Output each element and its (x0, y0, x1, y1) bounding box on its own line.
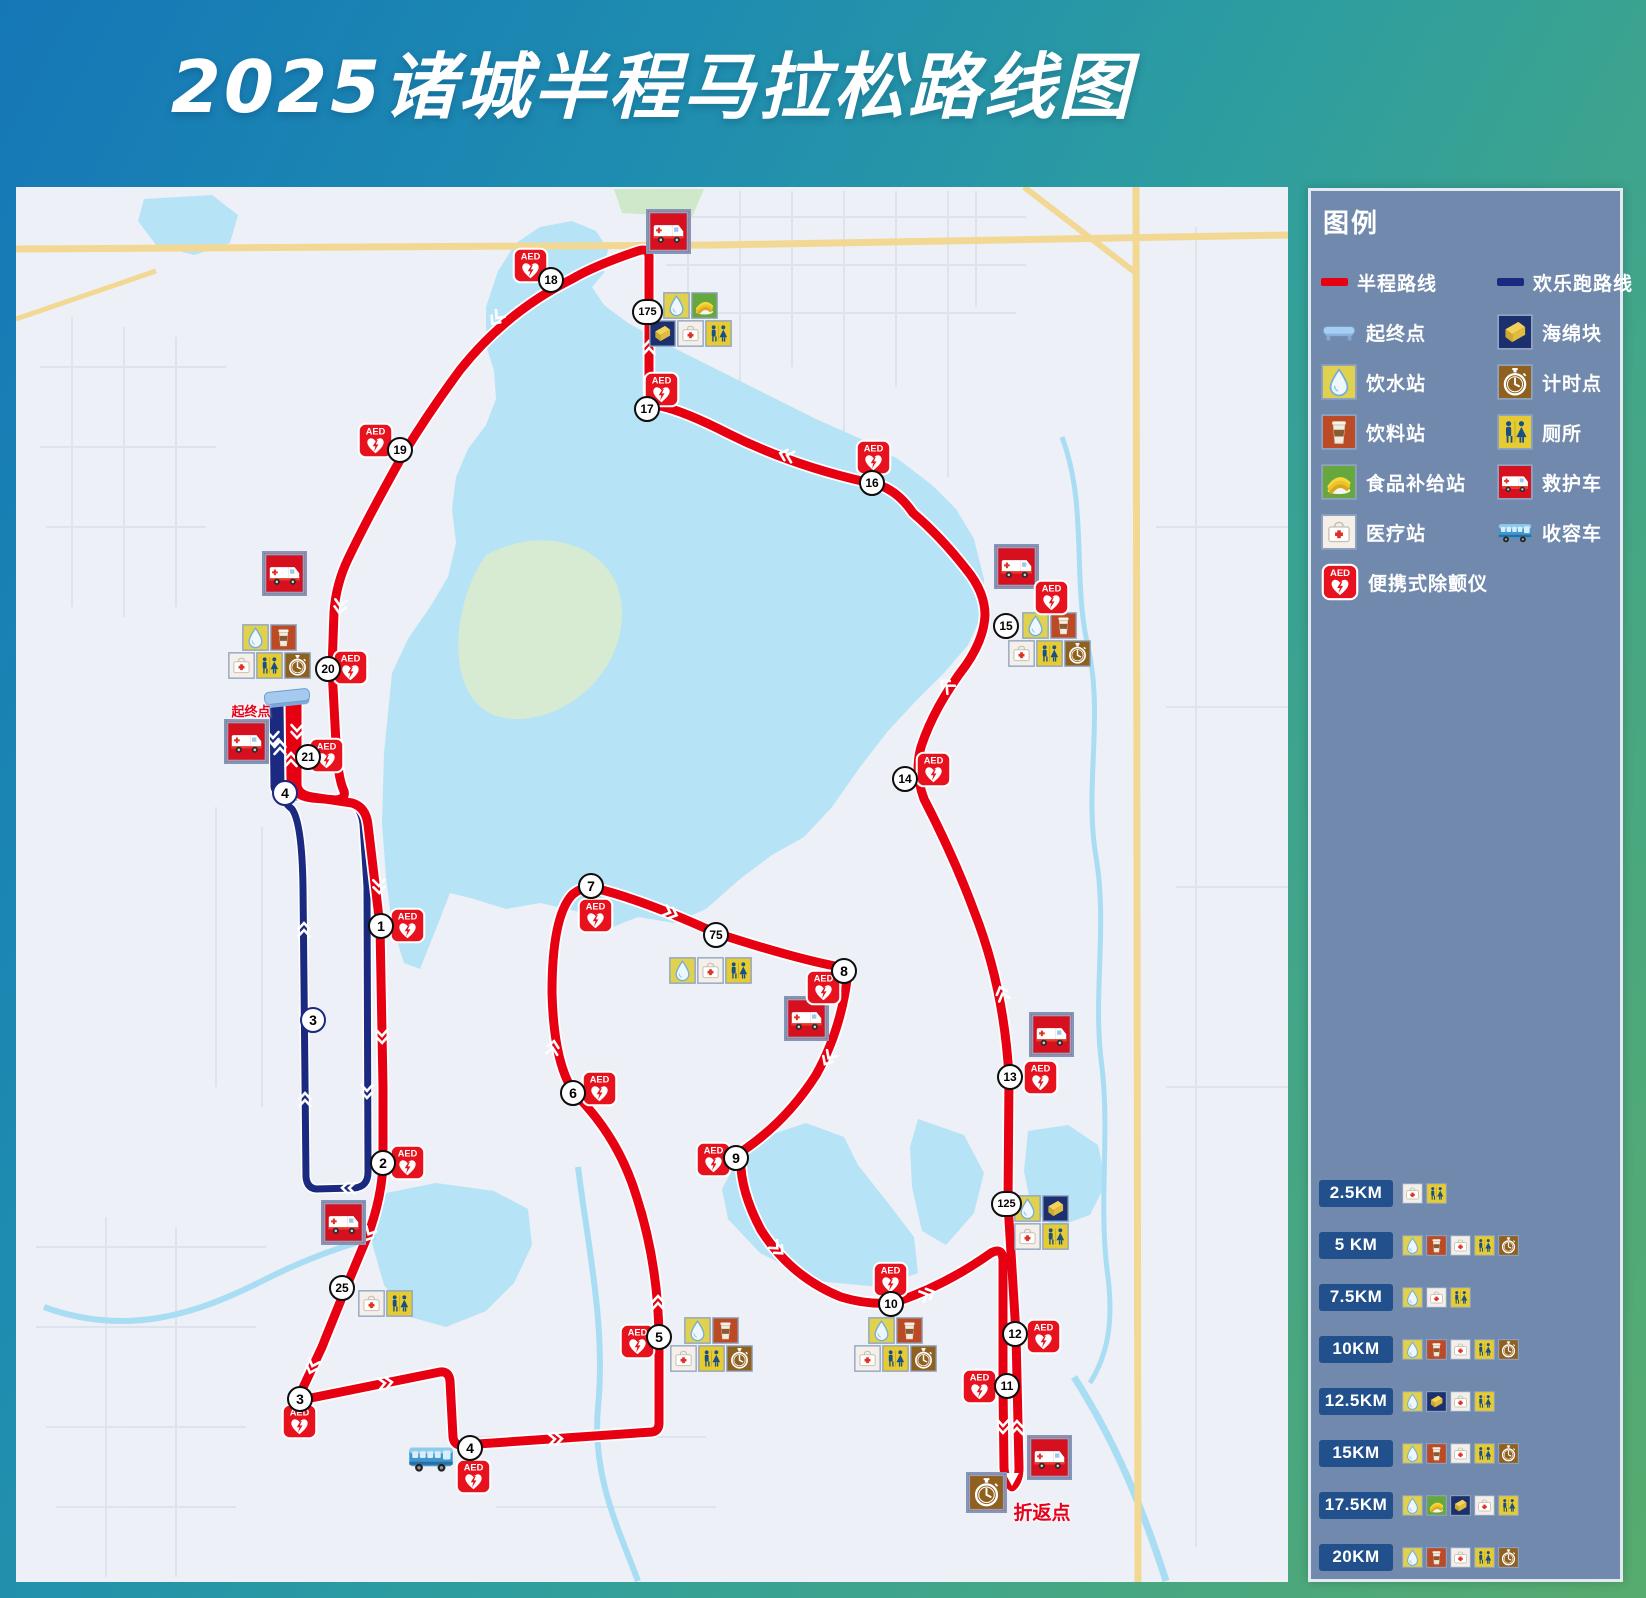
svg-text:AED: AED (366, 427, 386, 437)
ambulance-icon (648, 211, 689, 252)
distance-row: 5 KM (1319, 1219, 1619, 1271)
legend-entry-label: 厕所 (1542, 419, 1582, 446)
km-marker: 10 (878, 1291, 904, 1317)
water-icon (1402, 1391, 1423, 1412)
distance-chip: 2.5KM (1319, 1180, 1393, 1207)
station-cluster-icon (677, 320, 704, 347)
station-cluster-icon (725, 957, 752, 984)
km-marker: 19 (387, 437, 413, 463)
toilet-icon (882, 1345, 909, 1372)
distance-row-icons (1402, 1235, 1519, 1256)
toilet-icon (1497, 414, 1533, 450)
station-cluster-icon (726, 1345, 753, 1372)
legend-entry-label: 医疗站 (1366, 519, 1426, 546)
legend-row: 食品补给站救护车 (1321, 457, 1613, 507)
medical-icon (1402, 1183, 1423, 1204)
aed-icon: AED (455, 1458, 492, 1495)
medical-icon (1426, 1287, 1447, 1308)
km-marker: 13 (997, 1064, 1023, 1090)
station-cluster-icon (854, 1345, 881, 1372)
station-cluster-icon (1014, 1223, 1041, 1250)
sponge-icon (1426, 1391, 1447, 1412)
legend-entry: 饮料站 (1321, 414, 1497, 450)
aed-icon: AED (915, 751, 952, 788)
timing-icon (1498, 1443, 1519, 1464)
station-cluster-icon (228, 652, 255, 679)
medical-icon (697, 957, 724, 984)
beverage-icon (270, 624, 297, 651)
map-text-label: 起终点 (231, 701, 270, 720)
station-cluster-icon (705, 320, 732, 347)
start-finish-icon (1321, 314, 1357, 350)
station-cluster-icon (358, 1290, 385, 1317)
aed-icon: AED (1025, 1318, 1062, 1355)
legend-entry-label: 饮水站 (1366, 369, 1426, 396)
station-cluster-icon (712, 1317, 739, 1344)
toilet-icon (705, 320, 732, 347)
bus-icon (407, 1434, 455, 1482)
water-icon (684, 1317, 711, 1344)
timing-point-icon (966, 1472, 1007, 1513)
km-marker: 20 (315, 656, 341, 682)
svg-text:AED: AED (704, 1146, 724, 1156)
distance-row-icons (1402, 1443, 1519, 1464)
station-cluster-icon (256, 652, 283, 679)
distance-row-icons (1402, 1495, 1519, 1516)
svg-text:AED: AED (814, 974, 834, 984)
medical-icon (1474, 1495, 1495, 1516)
water-icon (1402, 1547, 1423, 1568)
svg-text:AED: AED (1330, 568, 1350, 579)
medical-icon (677, 320, 704, 347)
ambulance-icon (321, 1200, 366, 1245)
medical-icon (1321, 514, 1357, 550)
km-marker: 4 (272, 780, 298, 806)
toilet-icon (386, 1290, 413, 1317)
station-cluster-icon (684, 1317, 711, 1344)
distance-chip: 15KM (1319, 1440, 1393, 1467)
distance-row-icons (1402, 1547, 1519, 1568)
station-cluster-icon (670, 1345, 697, 1372)
beverage-icon (1426, 1547, 1447, 1568)
km-marker: 15 (993, 613, 1019, 639)
water-icon (1402, 1235, 1423, 1256)
water-icon (1402, 1495, 1423, 1516)
svg-text:AED: AED (521, 252, 541, 262)
aed-icon: AED (577, 897, 614, 934)
aed-icon: AED (1022, 1059, 1059, 1096)
toilet-icon (256, 652, 283, 679)
legend-entry: AED便携式除颤仪 (1321, 563, 1497, 601)
svg-text:AED: AED (398, 1149, 418, 1159)
ambulance-icon (1031, 1014, 1072, 1055)
svg-text:AED: AED (398, 912, 418, 922)
toilet-icon (1474, 1339, 1495, 1360)
toilet-icon (725, 957, 752, 984)
distance-chip: 20KM (1319, 1544, 1393, 1571)
svg-text:AED: AED (881, 1266, 901, 1276)
aed-icon: AED (961, 1368, 998, 1405)
timing-icon (910, 1345, 937, 1372)
km-marker: 16 (859, 470, 885, 496)
svg-text:AED: AED (586, 902, 606, 912)
km-marker: 175 (632, 299, 663, 325)
km-marker: 11 (994, 1373, 1020, 1399)
ambulance-icon (1029, 1437, 1070, 1478)
medical-icon (1450, 1339, 1471, 1360)
ambulance-icon (1497, 464, 1533, 500)
ambulance-icon (1029, 1012, 1074, 1057)
legend-entry: 饮水站 (1321, 364, 1497, 400)
station-cluster-icon (284, 652, 311, 679)
legend-entry: 食品补给站 (1321, 464, 1497, 500)
distance-row: 17.5KM (1319, 1479, 1619, 1531)
station-cluster-icon (1022, 612, 1049, 639)
legend-entry: 医疗站 (1321, 514, 1497, 550)
timing-icon (1498, 1235, 1519, 1256)
station-cluster-icon (910, 1345, 937, 1372)
distance-row: 7.5KM (1319, 1271, 1619, 1323)
svg-text:AED: AED (652, 376, 672, 386)
map-text-label: 折返点 (1013, 1498, 1070, 1525)
km-marker: 4 (457, 1435, 483, 1461)
medical-icon (1450, 1443, 1471, 1464)
timing-icon (726, 1345, 753, 1372)
station-cluster-icon (868, 1317, 895, 1344)
aed-icon: AED (455, 1458, 492, 1495)
beverage-icon (1426, 1443, 1447, 1464)
km-marker: 3 (300, 1007, 326, 1033)
water-icon (663, 292, 690, 319)
distance-row-icons (1402, 1339, 1519, 1360)
beverage-icon (1426, 1339, 1447, 1360)
aed-icon: AED (581, 1070, 618, 1107)
medical-icon (1450, 1235, 1471, 1256)
legend-grid: 半程路线欢乐跑路线起终点海绵块饮水站计时点饮料站厕所食品补给站救护车医疗站收容车… (1321, 257, 1613, 607)
water-icon (242, 624, 269, 651)
legend-entry: 计时点 (1497, 364, 1602, 400)
aed-icon: AED (1022, 1059, 1059, 1096)
half-route-swatch (1321, 278, 1348, 286)
station-cluster-icon (1042, 1195, 1069, 1222)
aed-icon: AED (961, 1368, 998, 1405)
water-icon (1402, 1443, 1423, 1464)
page-title: 2025诸城半程马拉松路线图 (16, 28, 1288, 133)
legend-entry-label: 起终点 (1366, 319, 1426, 346)
ambulance-icon (996, 546, 1037, 587)
legend-entry-label: 救护车 (1542, 469, 1602, 496)
legend-entry-label: 欢乐跑路线 (1533, 269, 1633, 296)
medical-icon (1450, 1547, 1471, 1568)
ambulance-icon (264, 553, 305, 594)
ambulance-icon (646, 209, 691, 254)
aed-icon: AED (1033, 579, 1070, 616)
legend-row: 医疗站收容车 (1321, 507, 1613, 557)
legend-panel: 图例 半程路线欢乐跑路线起终点海绵块饮水站计时点饮料站厕所食品补给站救护车医疗站… (1308, 188, 1623, 1582)
station-cluster-icon (663, 292, 690, 319)
svg-text:AED: AED (1031, 1064, 1051, 1074)
distance-chip: 10KM (1319, 1336, 1393, 1363)
svg-text:AED: AED (864, 444, 884, 454)
aed-icon: AED (389, 907, 426, 944)
beverage-icon (712, 1317, 739, 1344)
distance-chip: 5 KM (1319, 1232, 1393, 1259)
timing-icon (968, 1474, 1005, 1511)
svg-text:AED: AED (970, 1373, 990, 1383)
toilet-icon (1450, 1287, 1471, 1308)
distance-row-icons (1402, 1183, 1447, 1204)
beverage-icon (1321, 414, 1357, 450)
legend-entry-label: 食品补给站 (1366, 469, 1466, 496)
legend-entry: 厕所 (1497, 414, 1582, 450)
distance-row: 15KM (1319, 1427, 1619, 1479)
km-marker: 8 (831, 958, 857, 984)
sponge-icon (1450, 1495, 1471, 1516)
km-marker: 12 (1002, 1321, 1028, 1347)
svg-text:AED: AED (1042, 584, 1062, 594)
medical-icon (854, 1345, 881, 1372)
ambulance-icon (224, 719, 269, 764)
legend-entry: 收容车 (1497, 514, 1602, 550)
timing-icon (1497, 364, 1533, 400)
km-marker: 25 (329, 1275, 355, 1301)
km-marker: 6 (560, 1080, 586, 1106)
sponge-icon (1042, 1195, 1069, 1222)
toilet-icon (1474, 1235, 1495, 1256)
distance-row: 12.5KM (1319, 1375, 1619, 1427)
svg-text:AED: AED (317, 742, 337, 752)
poster-canvas: 2025诸城半程马拉松路线图 (0, 0, 1646, 1598)
distance-row: 2.5KM (1319, 1167, 1619, 1219)
legend-row: AED便携式除颤仪 (1321, 557, 1613, 607)
water-icon (1402, 1287, 1423, 1308)
km-marker: 21 (295, 744, 321, 770)
food-icon (1426, 1495, 1447, 1516)
distance-row-icons (1402, 1391, 1495, 1412)
station-cluster-icon (1050, 612, 1077, 639)
svg-text:AED: AED (628, 1328, 648, 1338)
toilet-icon (698, 1345, 725, 1372)
timing-icon (284, 652, 311, 679)
km-marker: 2 (370, 1150, 396, 1176)
legend-entry: 起终点 (1321, 314, 1497, 350)
legend-entry-label: 收容车 (1542, 519, 1602, 546)
timing-icon (1498, 1547, 1519, 1568)
legend-entry-label: 计时点 (1542, 369, 1602, 396)
km-marker: 1 (368, 913, 394, 939)
beverage-icon (896, 1317, 923, 1344)
beverage-icon (1426, 1235, 1447, 1256)
svg-text:AED: AED (924, 756, 944, 766)
station-cluster-icon (691, 292, 718, 319)
water-icon (1321, 364, 1357, 400)
aed-icon: AED (577, 897, 614, 934)
timing-icon (1498, 1339, 1519, 1360)
beverage-icon (1050, 612, 1077, 639)
station-cluster-icon (386, 1290, 413, 1317)
legend-row: 半程路线欢乐跑路线 (1321, 257, 1613, 307)
station-cluster-icon (896, 1317, 923, 1344)
toilet-icon (1036, 640, 1063, 667)
aed-icon: AED (915, 751, 952, 788)
medical-icon (1014, 1223, 1041, 1250)
station-cluster-icon (1036, 640, 1063, 667)
toilet-icon (1042, 1223, 1069, 1250)
legend-title: 图例 (1323, 203, 1379, 240)
route-map: AEDAEDAEDAEDAEDAEDAEDAEDAEDAEDAEDAEDAEDA… (16, 187, 1288, 1582)
distance-chip: 12.5KM (1319, 1388, 1393, 1415)
km-marker: 5 (646, 1324, 672, 1350)
water-icon (1022, 612, 1049, 639)
km-marker: 9 (723, 1145, 749, 1171)
distance-chip: 7.5KM (1319, 1284, 1393, 1311)
legend-entry-label: 饮料站 (1366, 419, 1426, 446)
km-marker: 7 (578, 873, 604, 899)
legend-row: 饮料站厕所 (1321, 407, 1613, 457)
toilet-icon (1426, 1183, 1447, 1204)
distance-row-icons (1402, 1287, 1471, 1308)
station-cluster-icon (698, 1345, 725, 1372)
station-cluster-icon (1064, 640, 1091, 667)
station-cluster-icon (270, 624, 297, 651)
toilet-icon (1498, 1495, 1519, 1516)
legend-entry: 海绵块 (1497, 314, 1602, 350)
km-marker: 17 (634, 396, 660, 422)
water-icon (868, 1317, 895, 1344)
svg-text:AED: AED (590, 1075, 610, 1085)
station-cluster-icon (242, 624, 269, 651)
ambulance-icon (262, 551, 307, 596)
svg-text:AED: AED (1034, 1323, 1054, 1333)
km-marker: 18 (538, 267, 564, 293)
distance-row: 10KM (1319, 1323, 1619, 1375)
legend-row: 饮水站计时点 (1321, 357, 1613, 407)
legend-row: 起终点海绵块 (1321, 307, 1613, 357)
legend-entry: 半程路线 (1321, 269, 1497, 296)
km-marker: 125 (991, 1191, 1022, 1217)
station-cluster-icon (1042, 1223, 1069, 1250)
medical-icon (228, 652, 255, 679)
medical-icon (670, 1345, 697, 1372)
ambulance-icon (323, 1202, 364, 1243)
timing-icon (1064, 640, 1091, 667)
toilet-icon (1474, 1443, 1495, 1464)
legend-entry: 救护车 (1497, 464, 1602, 500)
legend-entry: 欢乐跑路线 (1497, 269, 1633, 296)
station-cluster-icon (1008, 640, 1035, 667)
fun-route-swatch (1497, 278, 1524, 286)
km-marker: 14 (892, 766, 918, 792)
bus-icon (1497, 514, 1533, 550)
distance-chip: 17.5KM (1319, 1492, 1393, 1519)
aed-icon: AED (581, 1070, 618, 1107)
aed-icon: AED (1321, 563, 1359, 601)
distance-row: 20KM (1319, 1531, 1619, 1583)
legend-entry-label: 便携式除颤仪 (1368, 569, 1488, 596)
station-cluster-icon (669, 957, 696, 984)
distance-rows: 2.5KM5 KM7.5KM10KM12.5KM15KM17.5KM20KM (1319, 1167, 1619, 1583)
medical-icon (1008, 640, 1035, 667)
svg-text:AED: AED (341, 654, 361, 664)
medical-icon (1450, 1391, 1471, 1412)
station-cluster-icon (697, 957, 724, 984)
svg-text:AED: AED (464, 1463, 484, 1473)
toilet-icon (1474, 1391, 1495, 1412)
aed-icon: AED (389, 907, 426, 944)
legend-entry-label: 半程路线 (1357, 269, 1437, 296)
toilet-icon (1474, 1547, 1495, 1568)
sponge-icon (1497, 314, 1533, 350)
km-marker: 3 (287, 1386, 313, 1412)
aed-icon: AED (1033, 579, 1070, 616)
food-icon (691, 292, 718, 319)
medical-icon (358, 1290, 385, 1317)
km-marker: 75 (703, 922, 729, 948)
ambulance-icon (226, 721, 267, 762)
station-cluster-icon (882, 1345, 909, 1372)
water-icon (1402, 1339, 1423, 1360)
bus-icon (407, 1434, 455, 1482)
food-icon (1321, 464, 1357, 500)
aed-icon: AED (1025, 1318, 1062, 1355)
ambulance-icon (1027, 1435, 1072, 1480)
water-icon (669, 957, 696, 984)
legend-entry-label: 海绵块 (1542, 319, 1602, 346)
